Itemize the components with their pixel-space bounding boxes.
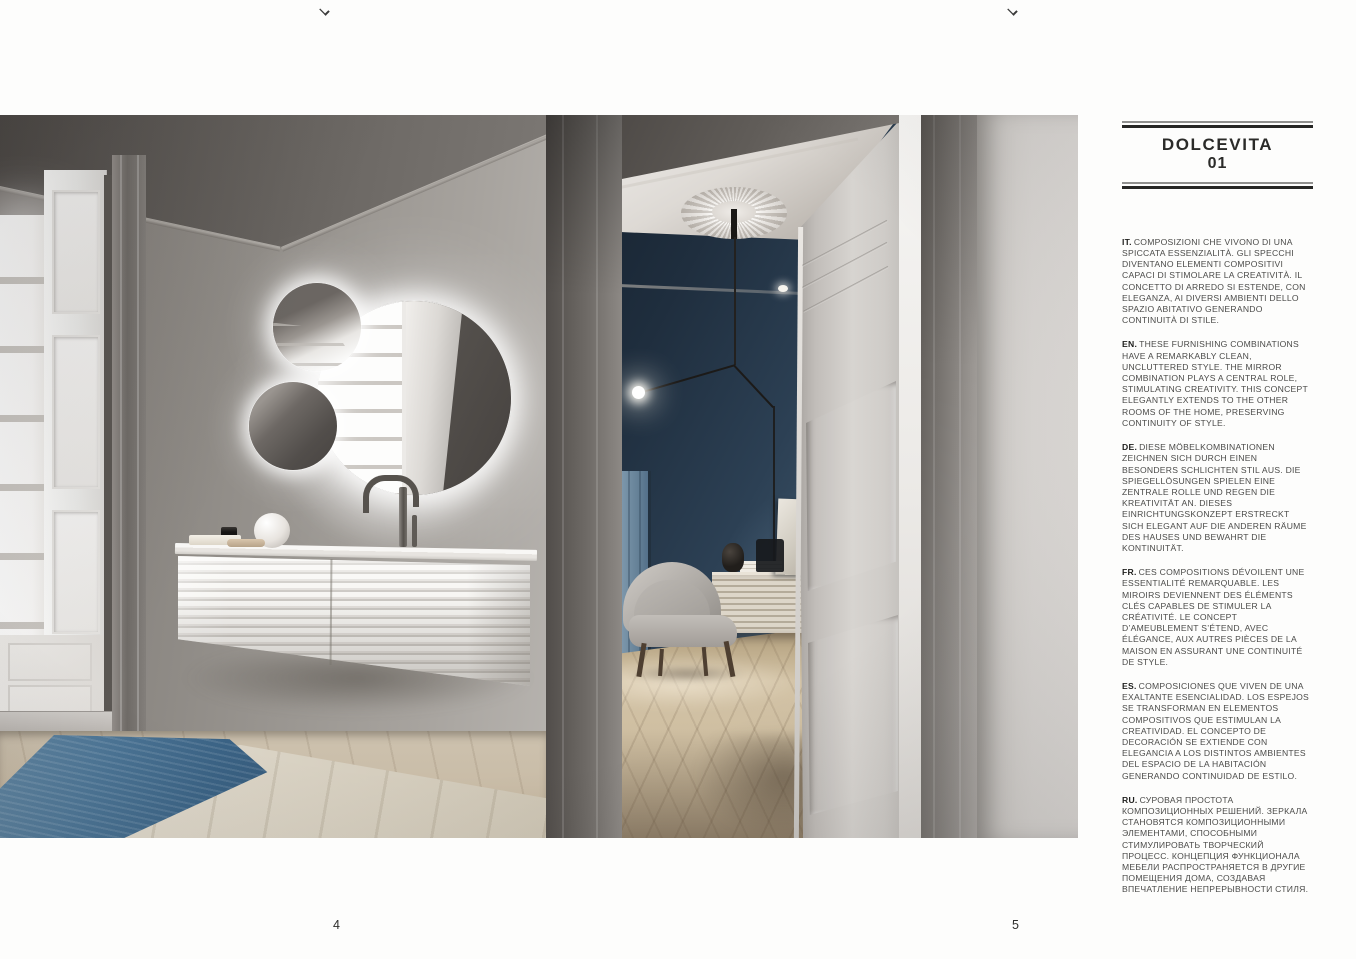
door-floor-shadow bbox=[696, 735, 821, 838]
window-glazing bbox=[0, 215, 46, 640]
dark-decor-object bbox=[756, 539, 784, 572]
collection-title: DOLCEVITA bbox=[1122, 136, 1313, 154]
round-mirror-medium bbox=[272, 282, 362, 372]
cropped-glyph-mark-right bbox=[1007, 5, 1018, 16]
faucet-spout bbox=[363, 475, 419, 507]
faucet-handle bbox=[412, 515, 417, 547]
base-panel bbox=[8, 643, 92, 681]
paragraph-it: IT.COMPOSIZIONI CHE VIVONO DI UNA SPICCA… bbox=[1122, 237, 1313, 327]
title-rule-bottom bbox=[1122, 182, 1313, 189]
pendant-rod bbox=[731, 209, 737, 239]
shutter-panel bbox=[52, 190, 100, 314]
paragraph-de: DE.DIESE MÖBELKOMBINATIONEN ZEICHNEN SIC… bbox=[1122, 442, 1313, 554]
paragraph-text: DIESE MÖBELKOMBINATIONEN ZEICHNEN SICH D… bbox=[1122, 442, 1307, 553]
window-reveal bbox=[104, 175, 112, 735]
paragraph-text: CES COMPOSITIONS DÉVOILENT UNE ESSENTIAL… bbox=[1122, 567, 1304, 667]
paragraph-ru: RU.СУРОВАЯ ПРОСТОТА КОМПОЗИЦИОННЫХ РЕШЕН… bbox=[1122, 795, 1313, 896]
description-paragraphs: IT.COMPOSIZIONI CHE VIVONO DI UNA SPICCA… bbox=[1122, 237, 1313, 896]
window-shutter bbox=[44, 170, 107, 665]
right-wall bbox=[977, 115, 1078, 838]
collection-number: 01 bbox=[1122, 155, 1313, 173]
rule-thick bbox=[1122, 186, 1313, 189]
paragraph-fr: FR.CES COMPOSITIONS DÉVOILENT UNE ESSENT… bbox=[1122, 567, 1313, 668]
recessed-spotlight bbox=[778, 285, 788, 292]
lang-tag-en: EN. bbox=[1122, 339, 1137, 349]
shutter-panel bbox=[52, 510, 100, 634]
doorway-right-architrave bbox=[921, 115, 977, 838]
armchair-seat bbox=[629, 615, 737, 647]
faucet-spout-tip bbox=[363, 499, 369, 513]
lang-tag-de: DE. bbox=[1122, 442, 1137, 452]
title-rule-top bbox=[1122, 121, 1313, 128]
paragraph-es: ES.COMPOSICIONES QUE VIVEN DE UNA EXALTA… bbox=[1122, 681, 1313, 782]
window-architrave bbox=[112, 155, 146, 735]
lang-tag-it: IT. bbox=[1122, 237, 1132, 247]
pendant-bulb bbox=[632, 386, 645, 399]
interior-photo bbox=[0, 115, 1078, 838]
doorway-to-blue-room bbox=[546, 115, 900, 838]
door-bright-edge bbox=[899, 115, 921, 838]
dark-vase bbox=[722, 543, 744, 572]
lang-tag-fr: FR. bbox=[1122, 567, 1137, 577]
article-column: DOLCEVITA 01 IT.COMPOSIZIONI CHE VIVONO … bbox=[1122, 121, 1313, 909]
mirror-glass bbox=[249, 382, 337, 470]
door-panel bbox=[808, 615, 898, 815]
paragraph-text: COMPOSICIONES QUE VIVEN DE UNA EXALTANTE… bbox=[1122, 681, 1309, 781]
faucet-column bbox=[399, 487, 407, 547]
lang-tag-es: ES. bbox=[1122, 681, 1137, 691]
lang-tag-ru: RU. bbox=[1122, 795, 1138, 805]
page-number-right: 5 bbox=[1012, 918, 1019, 932]
paragraph-en: EN.THESE FURNISHING COMBINATIONS HAVE A … bbox=[1122, 339, 1313, 429]
rule-thin bbox=[1122, 121, 1313, 123]
rule-thin bbox=[1122, 182, 1313, 184]
cropped-glyph-mark-left bbox=[319, 5, 330, 16]
rule-thick bbox=[1122, 125, 1313, 128]
round-mirror-small bbox=[248, 381, 338, 471]
paragraph-text: СУРОВАЯ ПРОСТОТА КОМПОЗИЦИОННЫХ РЕШЕНИЙ.… bbox=[1122, 795, 1308, 895]
paragraph-text: COMPOSIZIONI CHE VIVONO DI UNA SPICCATA … bbox=[1122, 237, 1306, 325]
paragraph-text: THESE FURNISHING COMBINATIONS HAVE A REM… bbox=[1122, 339, 1308, 427]
page-number-left: 4 bbox=[333, 918, 340, 932]
pendant-cable bbox=[734, 237, 736, 365]
shutter-panel bbox=[52, 335, 100, 489]
doorway-left-architrave bbox=[546, 115, 622, 838]
folded-towel-tan bbox=[227, 539, 265, 547]
